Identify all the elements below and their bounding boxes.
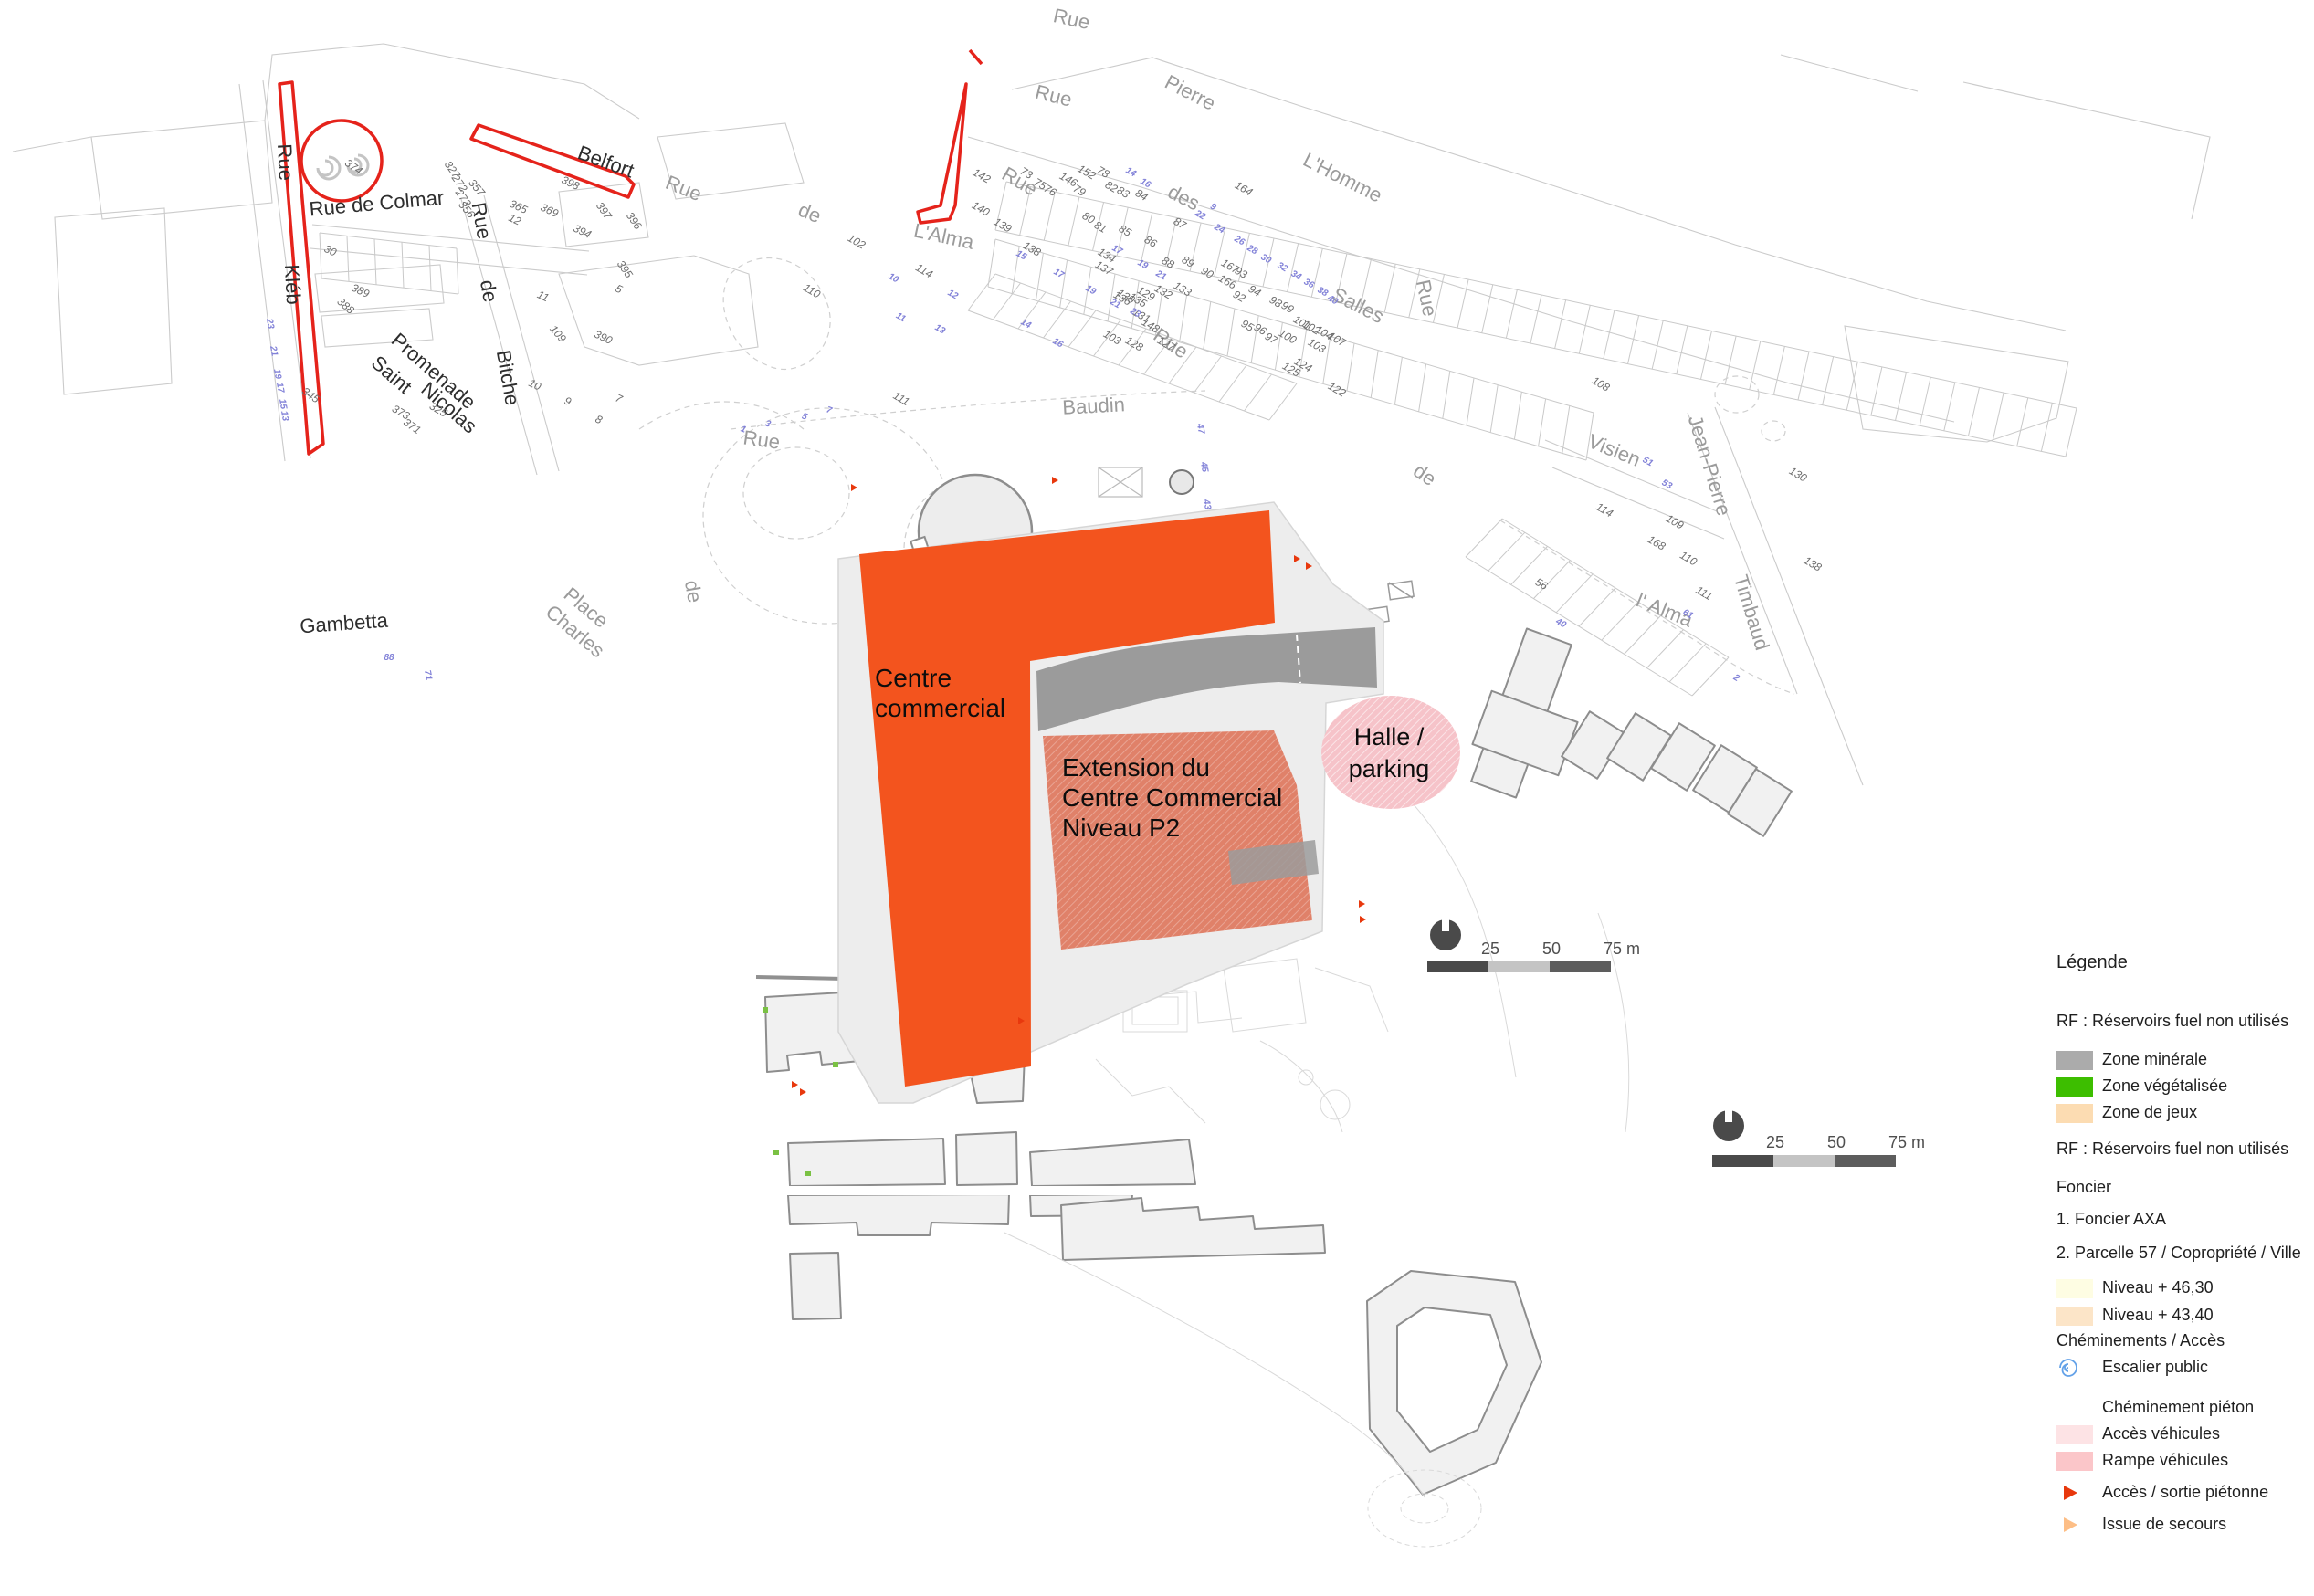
zone-vegetalisee-swatch [2056,1077,2093,1097]
parcel-number: 5 [614,282,625,297]
legend-icon [2056,1398,2093,1418]
parcel-number: 90 [1199,264,1216,281]
parcel-number: 128 [1123,333,1146,353]
scale-label: 50 [1542,940,1561,958]
legend-label: Chéminement piéton [2102,1398,2254,1418]
house-number: 43 [1201,498,1213,510]
parcel-tick [1625,615,1661,654]
parcel-number: 396 [624,209,645,232]
parcel-tick [402,242,404,288]
parcel-tick [1539,399,1546,446]
parcel-tick [1798,352,1809,400]
parcel-tick [1419,364,1426,412]
issue-secours-icon [2064,1517,2077,1532]
street-label: Timbaud [1730,572,1774,653]
parcel-tick [320,233,321,278]
extension-label: Centre Commercial [1062,783,1282,812]
parcel-tick [1194,356,1222,393]
parcel-number: 122 [1326,379,1349,399]
legend-label: Issue de secours [2102,1515,2226,1535]
scale-label: 25 [1481,940,1499,958]
acces-pieton-marker [1052,477,1058,484]
parcel-tick [1482,285,1493,333]
centre-commercial-label: commercial [875,694,1005,722]
parcel-tick [1968,387,1979,436]
parcel-tick [1371,351,1378,398]
parcel-tick [1993,393,2004,441]
parcel-tick [1288,244,1299,292]
parcel-tick [1530,295,1541,343]
street-label: Gambetta [299,609,389,638]
parcel-tick [1384,264,1395,312]
halle-parking-label: parking [1349,755,1430,782]
parcel-tick [1646,630,1683,668]
acces-pieton-marker [800,1088,806,1096]
zone-minerale-swatch [2056,1051,2093,1070]
street-rail [320,233,457,248]
parcel-tick [1669,644,1706,682]
parcel-tick [1269,383,1297,420]
parcel-number: 397 [594,199,615,223]
legend-title: Légende [2056,951,2314,973]
parcel-number: 102 [846,231,868,251]
parcel-number: 139 [992,215,1015,235]
parcel-number: 88 [1160,254,1177,271]
parcel-number: 89 [1180,253,1197,270]
legend-label: Niveau + 43,40 [2102,1306,2214,1326]
house-number: 36 [1302,277,1317,290]
scale-bar-segment [1773,1155,1835,1167]
parcel-number: 110 [1678,549,1699,569]
legend-row: Chéminement piéton [2056,1398,2314,1418]
green-marker [763,1007,768,1013]
parcel-tick [2017,398,2028,446]
acces-pieton-marker [851,484,857,491]
stair-highlight-circle [301,121,382,201]
legend-label: Niveau + 46,30 [2102,1278,2214,1298]
street-rail [321,278,458,294]
house-number: 51 [1641,455,1656,468]
house-number: 17 [1052,267,1067,280]
parcel-tick [1245,374,1272,411]
legend-row: Rampe véhicules [2056,1451,2314,1471]
street-label: de [1409,459,1440,491]
escalier-public-icon [2056,1358,2093,1378]
parcel-tick [1823,357,1834,405]
parcel-tick [1488,532,1525,571]
parcel-tick [1347,343,1354,391]
parcel-number: 138 [1802,553,1825,573]
house-number: 19 [271,368,283,380]
parcel-tick [1920,377,1930,425]
parcel-number: 108 [1590,373,1613,394]
street-label: Rue de Colmar [309,186,446,221]
north-indicator-notch [1442,919,1449,931]
acces-sortie-pietonne-icon [2064,1486,2077,1500]
legend-label: Zone de jeux [2102,1103,2197,1123]
parcel-tick [457,248,458,294]
niveau-4630-swatch [2056,1279,2093,1298]
legend-section-heading: Foncier [2056,1178,2314,1198]
parcel-tick [1750,341,1761,390]
parcel-number: 11 [535,288,551,304]
house-number: 21 [1153,268,1168,283]
parcel-tick [1604,310,1615,359]
extension-label: Extension du [1062,753,1210,782]
house-number: 53 [1660,478,1675,491]
acces-pieton-marker [792,1081,798,1088]
scale-label: 50 [1827,1133,1846,1151]
legend-label: Zone minérale [2102,1050,2207,1070]
parcel-tick [994,283,1021,320]
parcel-number: 168 [1646,532,1668,552]
legend-label: Zone végétalisée [2102,1076,2227,1097]
legend-section-heading: Chéminements / Accès [2056,1331,2314,1351]
parcel-tick [1068,197,1079,246]
house-number: 47 [1194,422,1206,435]
parcel-tick [1871,367,1882,415]
house-number: 30 [1259,252,1274,266]
scale-bar-segment [1550,961,1611,972]
house-number: 88 [384,653,394,663]
legend-row: Zone de jeux [2056,1103,2314,1123]
parcel-number: 85 [1117,222,1134,239]
parcel-number: 92 [1231,288,1248,305]
parcel-number: 8 [594,413,605,427]
legend-label: Rampe véhicules [2102,1451,2228,1471]
house-number: 14 [1019,317,1034,331]
scale-bar-segment [1712,1155,1773,1167]
legend-note: RF : Réservoirs fuel non utilisés [2056,1012,2314,1032]
house-number: 23 [264,317,276,330]
street-label: Rue [273,143,298,182]
parcel-number: 114 [1594,500,1615,520]
parcel-tick [968,274,995,310]
legend-label: Accès véhicules [2102,1424,2220,1444]
parcel-tick [1700,331,1711,379]
street-label: Rue [1412,278,1442,319]
parcel-tick [374,239,376,285]
rampe-vehicules-swatch [2056,1452,2093,1471]
zone-jeux-swatch [2056,1104,2093,1123]
north-indicator-notch [1725,1110,1732,1122]
street-label: L'Homme [1299,148,1386,207]
legend-row: Zone minérale [2056,1050,2314,1070]
parcel-number: 56 [1533,575,1551,593]
sheet-seam [438,1186,1616,1195]
street-label: de [476,278,502,303]
halle-parking-zone [1321,696,1460,809]
green-marker [805,1171,811,1176]
centre-commercial-label: Centre [875,664,952,692]
parcel-number: 142 [971,165,994,185]
alma-highlight [918,50,982,223]
parcel-tick [1773,346,1784,394]
street-label: Jean-Pierre [1684,413,1736,519]
green-marker [773,1150,779,1155]
parcel-tick [347,236,349,281]
parcel-number: 111 [891,389,912,408]
house-number: 13 [933,322,948,336]
parcel-tick [1466,519,1502,557]
extension-label: Niveau P2 [1062,814,1180,842]
parcel-number: 10 [527,376,543,393]
parcel-tick [1514,392,1521,439]
house-number: 32 [1276,260,1290,274]
house-number: 7 [825,405,833,416]
legend-entry: 2. Parcelle 57 / Copropriété / Ville [2056,1244,2314,1264]
parcel-tick [2041,403,2052,451]
house-number: 15 [277,398,289,410]
parcel-tick [1443,371,1450,418]
street-label: Belfort [574,141,636,182]
house-number: 71 [422,669,434,681]
street-label: Baudin [1062,393,1126,419]
legend-entry: 1. Foncier AXA [2056,1210,2314,1230]
parcel-number: 140 [970,198,993,218]
parcel-number: 130 [1787,464,1810,484]
parcel-number: 390 [593,328,615,347]
street-label: de [680,578,707,604]
street-label: Bitche [492,348,524,407]
parcel-tick [1579,305,1590,353]
parcel-number: 164 [1233,178,1256,198]
legend: LégendeRF : Réservoirs fuel non utilisés… [2056,951,2314,1535]
site-plan-page: RueRuePierreL'HommedesSallesRueRueRuedeL… [0,0,2314,1596]
house-number: 26 [1232,234,1246,248]
parcel-tick [988,239,995,287]
house-number: 11 [894,310,908,324]
parcel-number: 394 [572,222,594,241]
street-label: Visien [1585,429,1645,470]
parcel-tick [1219,365,1246,402]
legend-note: RF : Réservoirs fuel non utilisés [2056,1139,2314,1160]
acces-vehicules-swatch [2056,1425,2093,1444]
parcel-number: 100 [1277,326,1299,346]
site-plan-map: RueRuePierreL'HommedesSallesRueRueRuedeL… [0,0,2314,1596]
house-number: 2 [1730,672,1741,684]
scale-bars: 255075 m255075 m [1427,919,1925,1167]
legend-row: Accès / sortie piétonne [2056,1483,2314,1503]
legend-row: Niveau + 43,40 [2056,1306,2314,1326]
highlighted-streets [279,50,982,454]
parcel-tick [1036,253,1043,300]
acces-pieton-marker [1359,900,1365,908]
parcel-tick [1677,326,1688,374]
parcel-tick [429,246,431,291]
parcel-number: 9 [563,394,573,409]
parcel-number: 395 [615,257,636,280]
green-marker [833,1062,838,1067]
legend-label: Accès / sortie piétonne [2102,1483,2268,1503]
street-label: Rue [1033,80,1074,111]
parcel-tick [1896,373,1907,421]
parcel-number: 110 [801,281,823,301]
house-number: 10 [887,271,901,285]
house-number: 34 [1289,268,1304,282]
halle-parking-label: Halle / [1354,723,1425,751]
legend-row: Issue de secours [2056,1515,2314,1535]
parcel-number: 103 [1101,327,1124,347]
street-label: L'Alma [911,219,976,254]
street-label: Salles [1329,283,1388,328]
parcel-number: 111 [1694,583,1715,603]
parcel-tick [1394,357,1402,404]
parcel-number: 94 [1246,282,1264,299]
parcel-tick [1562,405,1570,453]
parcel-tick [1068,310,1096,347]
house-number: 5 [800,412,808,423]
parcel-number: 369 [539,201,561,220]
parcel-tick [1725,336,1736,384]
parcel-tick [1602,602,1638,640]
house-number: 14 [1124,165,1139,179]
house-number: 19 [1084,283,1099,297]
parcel-tick [1467,378,1474,425]
parcel-tick [1227,309,1235,356]
house-number: 21 [268,344,279,357]
house-number: 13 [279,410,290,422]
parcel-tick [1204,301,1211,349]
house-number: 17 [274,382,286,394]
legend-row: Zone végétalisée [2056,1076,2314,1097]
house-number: 12 [946,288,961,301]
scale-bar-segment [1427,961,1488,972]
scale-bar-segment [1488,961,1550,972]
parcel-tick [1555,300,1566,349]
niveau-4340-swatch [2056,1307,2093,1326]
legend-row: Niveau + 46,30 [2056,1278,2314,1298]
parcel-tick [1579,588,1615,626]
legend-row: Escalier public [2056,1358,2314,1378]
parcel-number: 109 [547,322,569,345]
parcel-number: 7 [614,392,626,406]
parcel-tick [1506,289,1517,338]
parcel-tick [1044,192,1055,240]
parcel-tick [1944,383,1955,431]
parcel-tick [1490,385,1498,433]
street-label: Rue [742,425,781,453]
parcel-tick [1692,657,1729,696]
house-number: 16 [1051,336,1066,350]
street-label: Kléb [280,264,305,305]
scale-label: 75 m [1888,1133,1925,1151]
parcel-number: 30 [322,242,339,258]
parcel-number: 81 [1092,218,1110,236]
parcel-tick [1556,574,1593,613]
legend-row: Accès véhicules [2056,1424,2314,1444]
scale-label: 75 m [1604,940,1640,958]
parcel-tick [2066,408,2077,457]
street-label: Rue [662,171,705,205]
street-label: Rue [1051,4,1092,34]
house-number: 45 [1198,460,1210,473]
parcel-number: 114 [913,261,935,281]
acces-pieton-marker [1360,916,1366,923]
legend-label: Escalier public [2102,1358,2208,1378]
scale-label: 25 [1766,1133,1784,1151]
street-label: de [795,198,825,227]
parcel-tick [1060,260,1068,308]
scale-bar-segment [1835,1155,1896,1167]
